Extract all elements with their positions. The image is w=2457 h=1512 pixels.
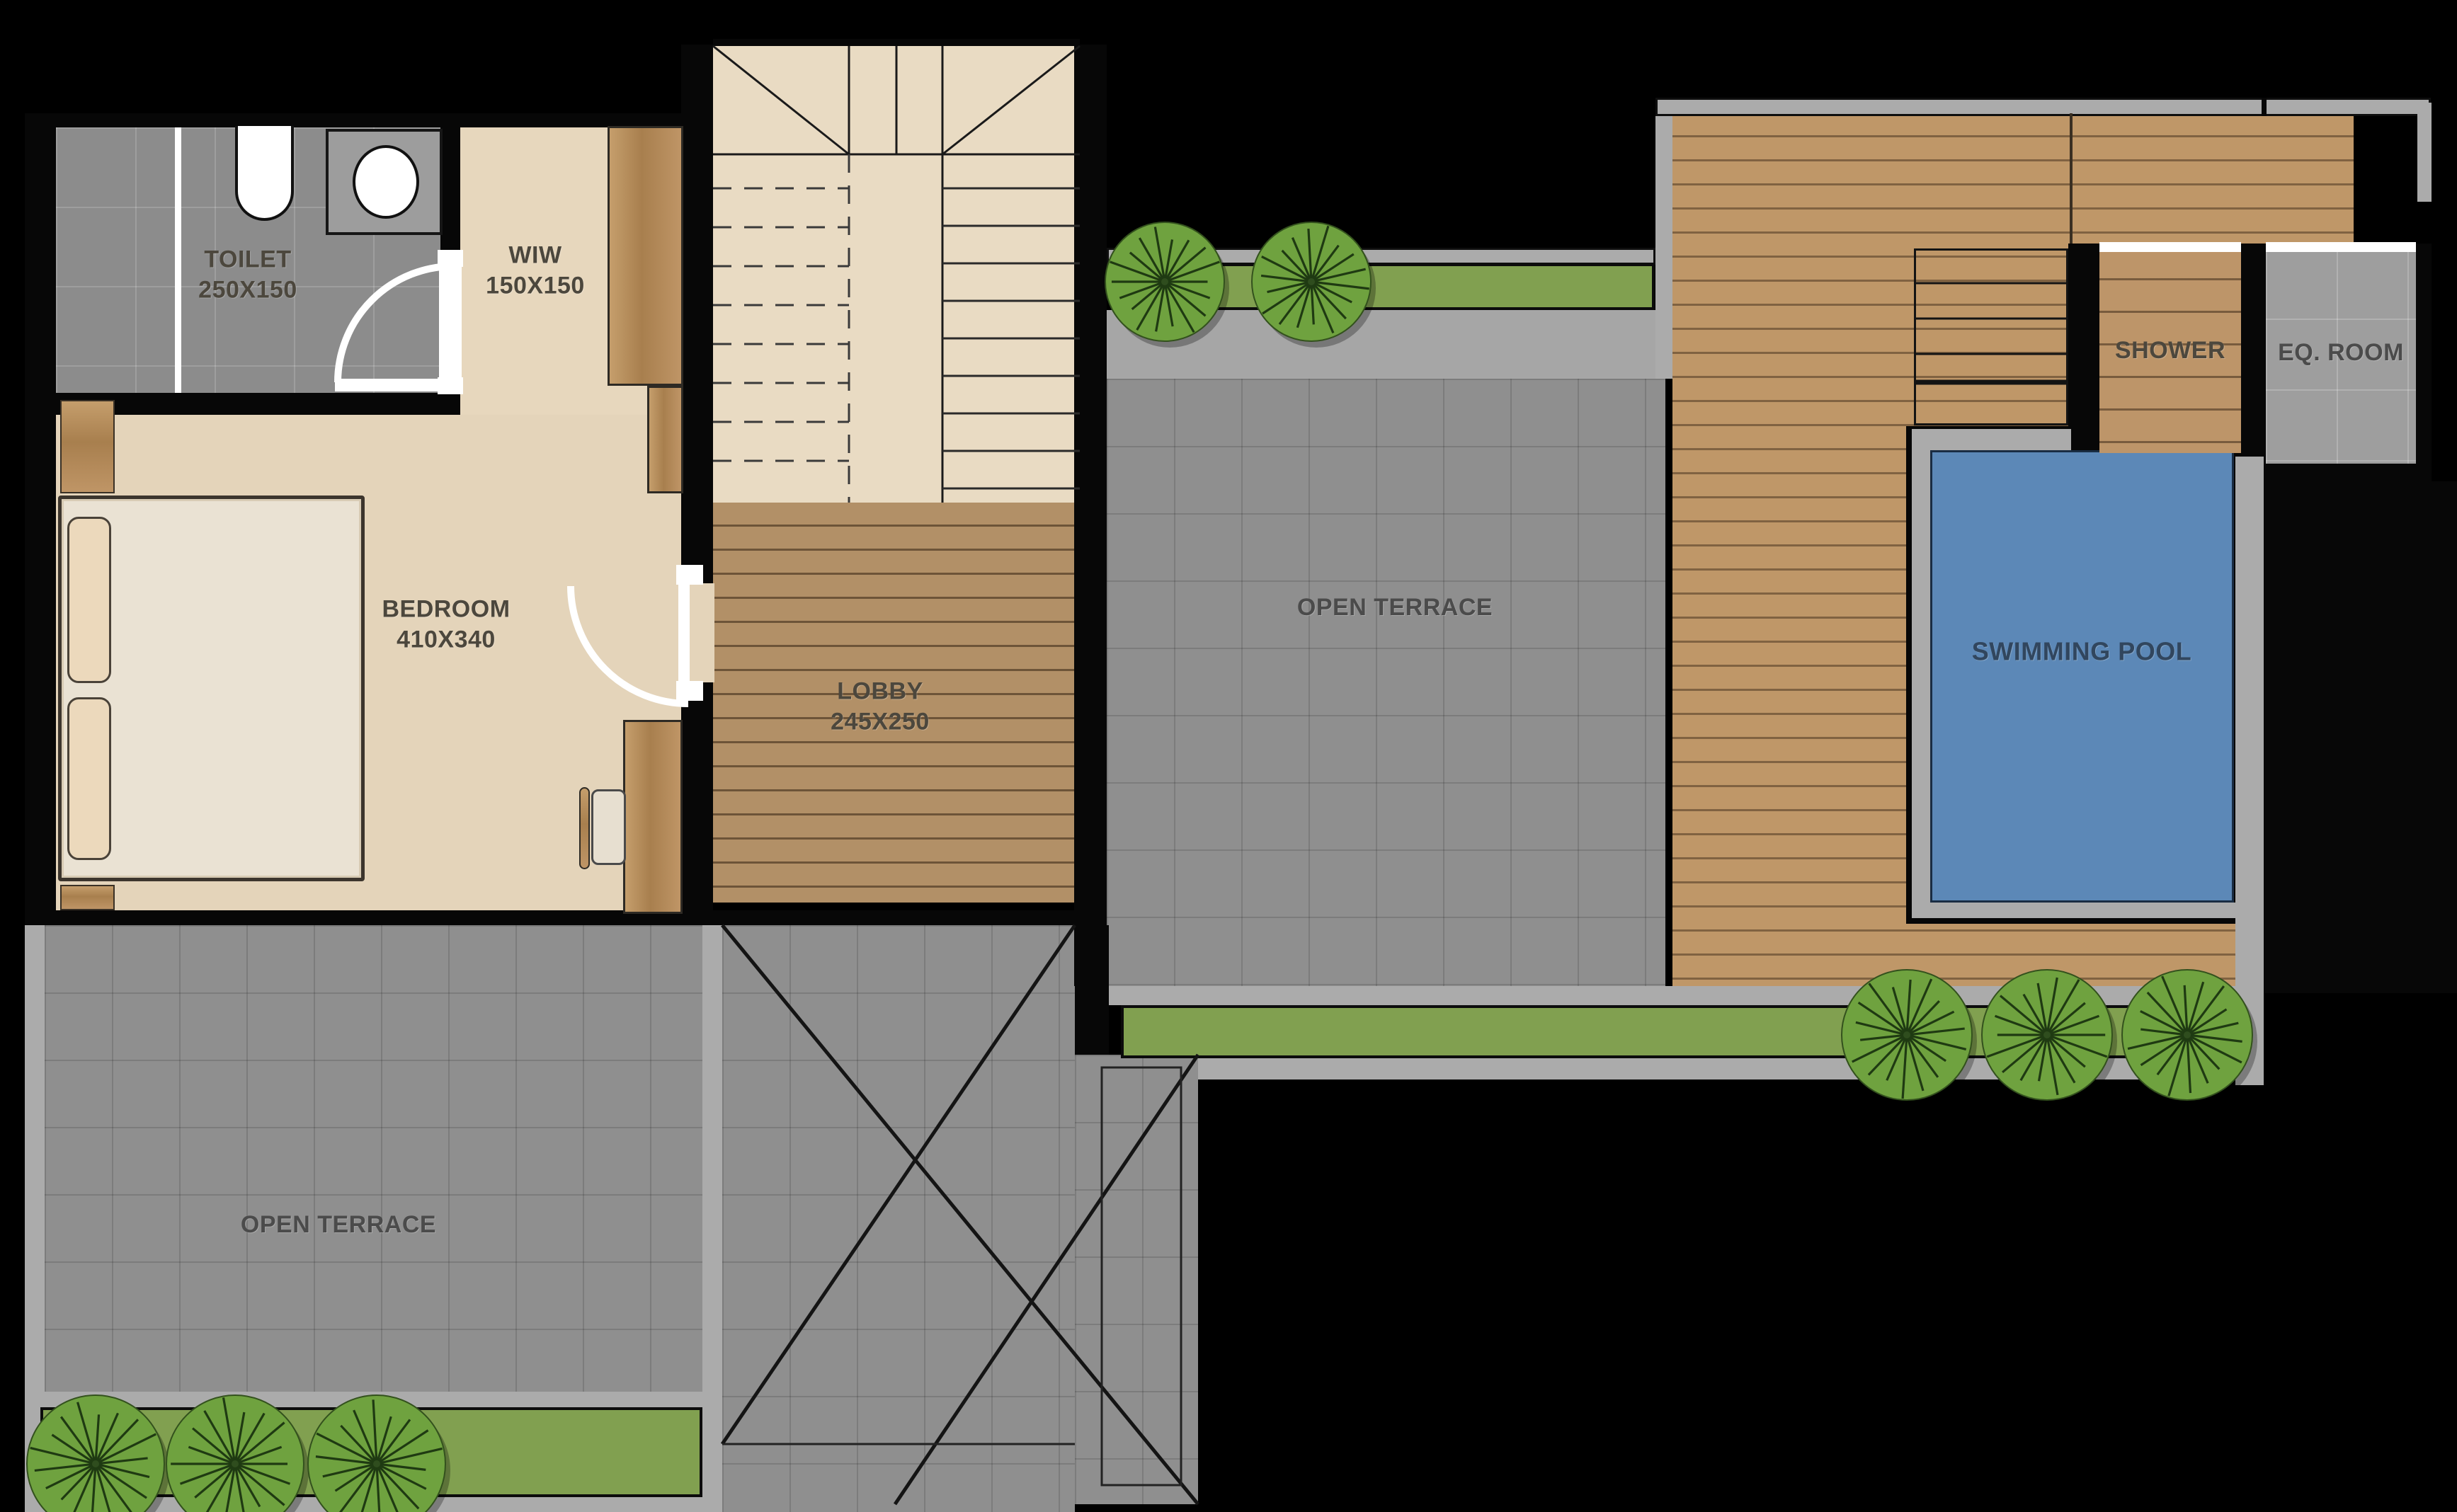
nightstand-top: [60, 400, 115, 493]
wardrobe-extension: [647, 386, 683, 493]
chair-seat: [591, 789, 626, 865]
wall-top: [25, 113, 690, 127]
wall-stub: [1075, 925, 1109, 1055]
chair-back: [579, 787, 590, 869]
label-open-terrace-middle: OPEN TERRACE: [1297, 592, 1493, 623]
deck-right-strip: [2417, 103, 2432, 202]
door-jamb: [438, 250, 463, 267]
wall-left: [25, 113, 56, 925]
label-bedroom: BEDROOM410X340: [382, 595, 510, 655]
pool-steps: [1914, 248, 2068, 425]
swimming-pool: [1930, 450, 2234, 903]
wall-stairs-top: [713, 39, 1080, 46]
wc-icon: [235, 126, 294, 221]
door-jamb: [676, 565, 703, 585]
pillow: [67, 517, 111, 683]
desk: [623, 720, 683, 914]
floor-plan: TOILET250X150 WIW150X150 BEDROOM410X340 …: [0, 0, 2457, 1512]
label-swimming-pool: SWIMMING POOL: [1972, 636, 2191, 668]
wall-bedroom-bottom: [25, 910, 1107, 925]
planter-mid-band-top: [1109, 986, 2264, 1005]
label-lobby: LOBBY245X250: [831, 677, 930, 737]
wardrobe: [608, 126, 683, 386]
door-jamb: [676, 681, 703, 701]
void-right-of-pool: [2235, 481, 2457, 993]
deck-top-parapet: [1655, 98, 2431, 116]
terrace-middle: [1107, 379, 1665, 986]
pool-coping-right: [2235, 457, 2264, 1085]
planter-mid-band-bottom: [1198, 1058, 2264, 1079]
pool-coping-left: [1912, 432, 1930, 918]
bedroom-door-leaf: [678, 583, 690, 682]
label-wiw: WIW150X150: [486, 241, 585, 301]
side-walk-column: [1075, 1055, 1198, 1504]
shower-threshold: [2099, 242, 2241, 252]
staircase: [713, 46, 1080, 503]
wall-bedroom-lobby: [681, 45, 713, 910]
basin-icon: [353, 145, 419, 219]
toilet-door-opening: [439, 263, 462, 379]
pillow: [67, 697, 111, 860]
pool-coping-bottom: [1912, 903, 2235, 918]
terrace-mid-walkway: [1107, 310, 1669, 379]
deck-parapet-joint: [2262, 98, 2267, 116]
wall-lobby-terrace: [1074, 45, 1107, 986]
pool-coping-topleft: [1912, 429, 2071, 452]
planter-bottom-left: [40, 1407, 702, 1497]
label-eq-room: EQ. ROOM: [2278, 338, 2404, 368]
planter-top: [1112, 263, 1655, 310]
nightstand-bottom: [60, 885, 115, 910]
label-toilet: TOILET250X150: [198, 245, 297, 305]
label-open-terrace-left: OPEN TERRACE: [241, 1210, 436, 1240]
roof-void-area: [722, 925, 1075, 1512]
shower-partition: [175, 127, 181, 393]
terrace-mid-parapet-top: [1107, 248, 1655, 265]
toilet-door-leaf: [335, 379, 459, 391]
planter-bottom-middle: [1121, 1005, 2234, 1058]
terrace-left: [45, 925, 702, 1392]
label-shower: SHOWER: [2115, 336, 2225, 366]
wall-eq-right: [2416, 244, 2432, 460]
eq-threshold: [2266, 242, 2416, 252]
deck-left-strip: [1655, 98, 1672, 379]
